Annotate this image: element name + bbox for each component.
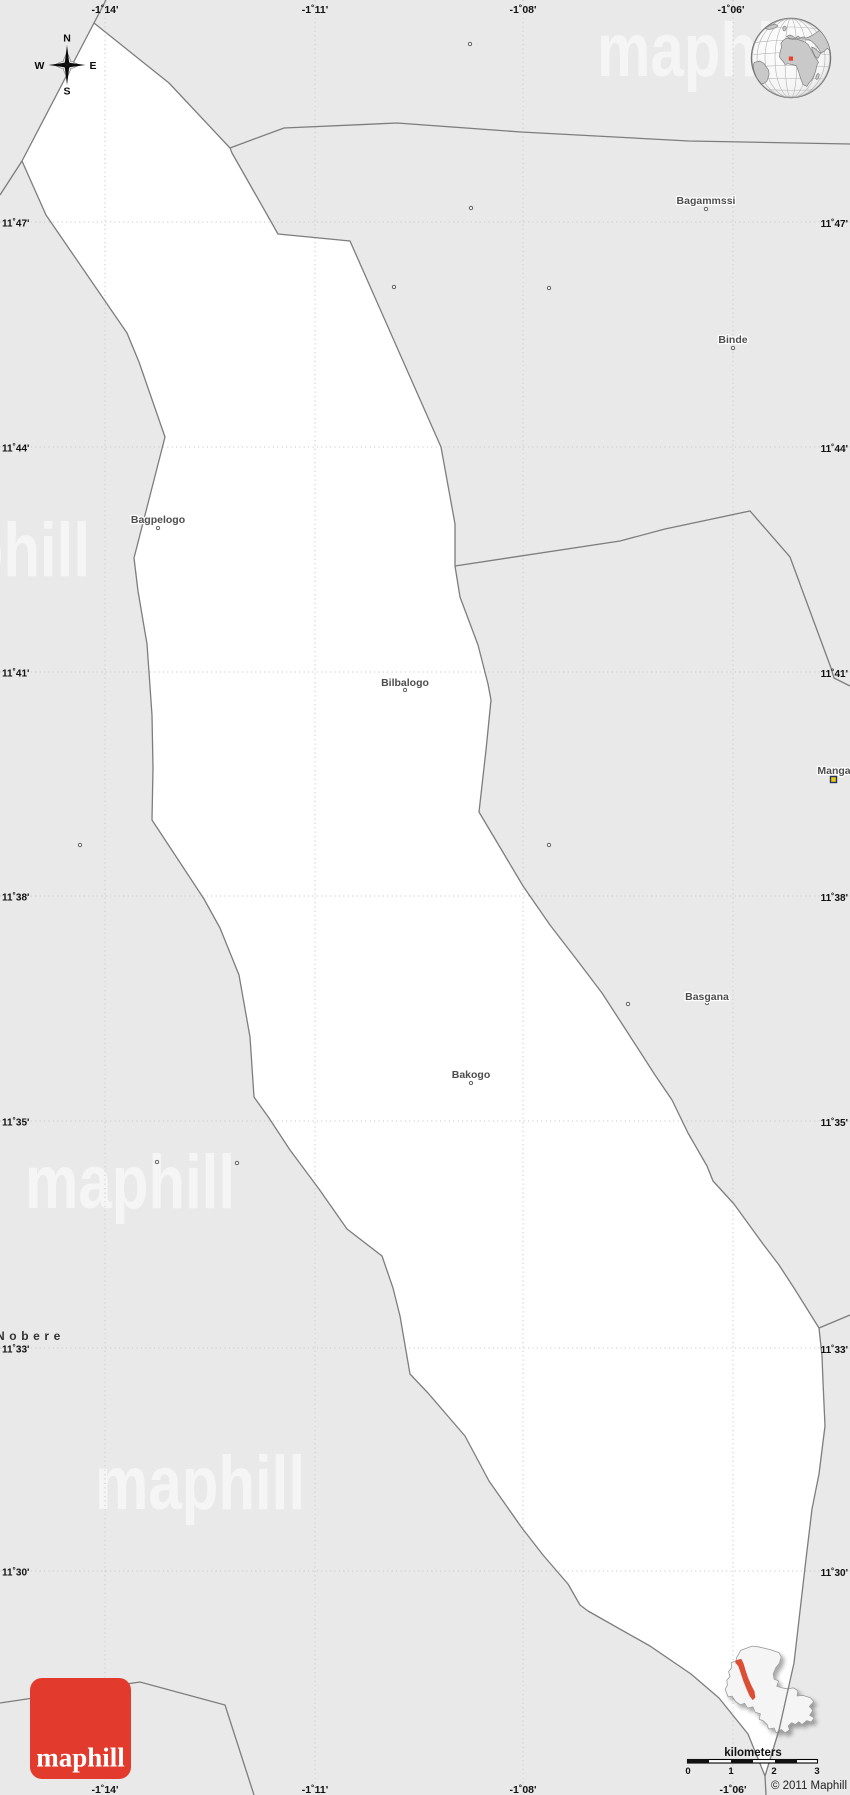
svg-text:0: 0 — [685, 1766, 690, 1777]
svg-text:-1˚11': -1˚11' — [302, 1784, 328, 1795]
svg-text:S: S — [63, 86, 70, 98]
svg-text:© 2011 Maphill: © 2011 Maphill — [771, 1780, 847, 1792]
svg-text:11˚41': 11˚41' — [2, 667, 29, 679]
svg-text:-1˚08': -1˚08' — [509, 1784, 536, 1795]
svg-text:Binde: Binde — [718, 334, 747, 346]
svg-text:11˚33': 11˚33' — [821, 1344, 848, 1356]
svg-text:Basgana: Basgana — [685, 991, 729, 1003]
svg-text:11˚30': 11˚30' — [2, 1566, 29, 1578]
svg-text:-1˚08': -1˚08' — [509, 4, 536, 16]
svg-text:maphill: maphill — [95, 1441, 305, 1526]
svg-text:-1˚06': -1˚06' — [719, 1784, 746, 1795]
svg-text:3: 3 — [814, 1766, 819, 1777]
svg-text:-1˚11': -1˚11' — [302, 4, 328, 16]
svg-text:maphill: maphill — [36, 1743, 125, 1773]
svg-text:Nobere: Nobere — [0, 1329, 65, 1343]
svg-text:11˚33': 11˚33' — [2, 1343, 29, 1355]
svg-text:maphill: maphill — [25, 1140, 235, 1225]
svg-text:-1˚14': -1˚14' — [91, 4, 118, 16]
svg-text:11˚35': 11˚35' — [2, 1116, 29, 1128]
svg-text:Bilbalogo: Bilbalogo — [381, 677, 429, 689]
svg-text:kilometers: kilometers — [724, 1747, 782, 1759]
svg-text:Bagpelogo: Bagpelogo — [131, 514, 185, 526]
svg-text:Manga: Manga — [817, 765, 850, 777]
svg-text:11˚38': 11˚38' — [2, 891, 29, 903]
svg-text:N: N — [63, 33, 71, 45]
svg-text:-1˚06': -1˚06' — [717, 4, 744, 16]
svg-text:Bagammssi: Bagammssi — [677, 195, 736, 207]
svg-text:E: E — [89, 60, 96, 72]
svg-text:W: W — [35, 60, 45, 72]
svg-text:11˚47': 11˚47' — [821, 218, 848, 230]
svg-text:-1˚14': -1˚14' — [91, 1784, 118, 1795]
svg-text:11˚30': 11˚30' — [821, 1567, 848, 1579]
svg-text:11˚44': 11˚44' — [821, 443, 848, 455]
svg-text:1: 1 — [728, 1766, 734, 1777]
svg-text:11˚41': 11˚41' — [821, 668, 848, 680]
svg-text:11˚38': 11˚38' — [821, 892, 848, 904]
svg-text:11˚35': 11˚35' — [821, 1117, 848, 1129]
svg-text:maphill: maphill — [0, 508, 90, 593]
svg-text:11˚47': 11˚47' — [2, 217, 29, 229]
svg-text:2: 2 — [771, 1766, 776, 1777]
svg-text:Bakogo: Bakogo — [452, 1069, 491, 1081]
svg-text:11˚44': 11˚44' — [2, 442, 29, 454]
